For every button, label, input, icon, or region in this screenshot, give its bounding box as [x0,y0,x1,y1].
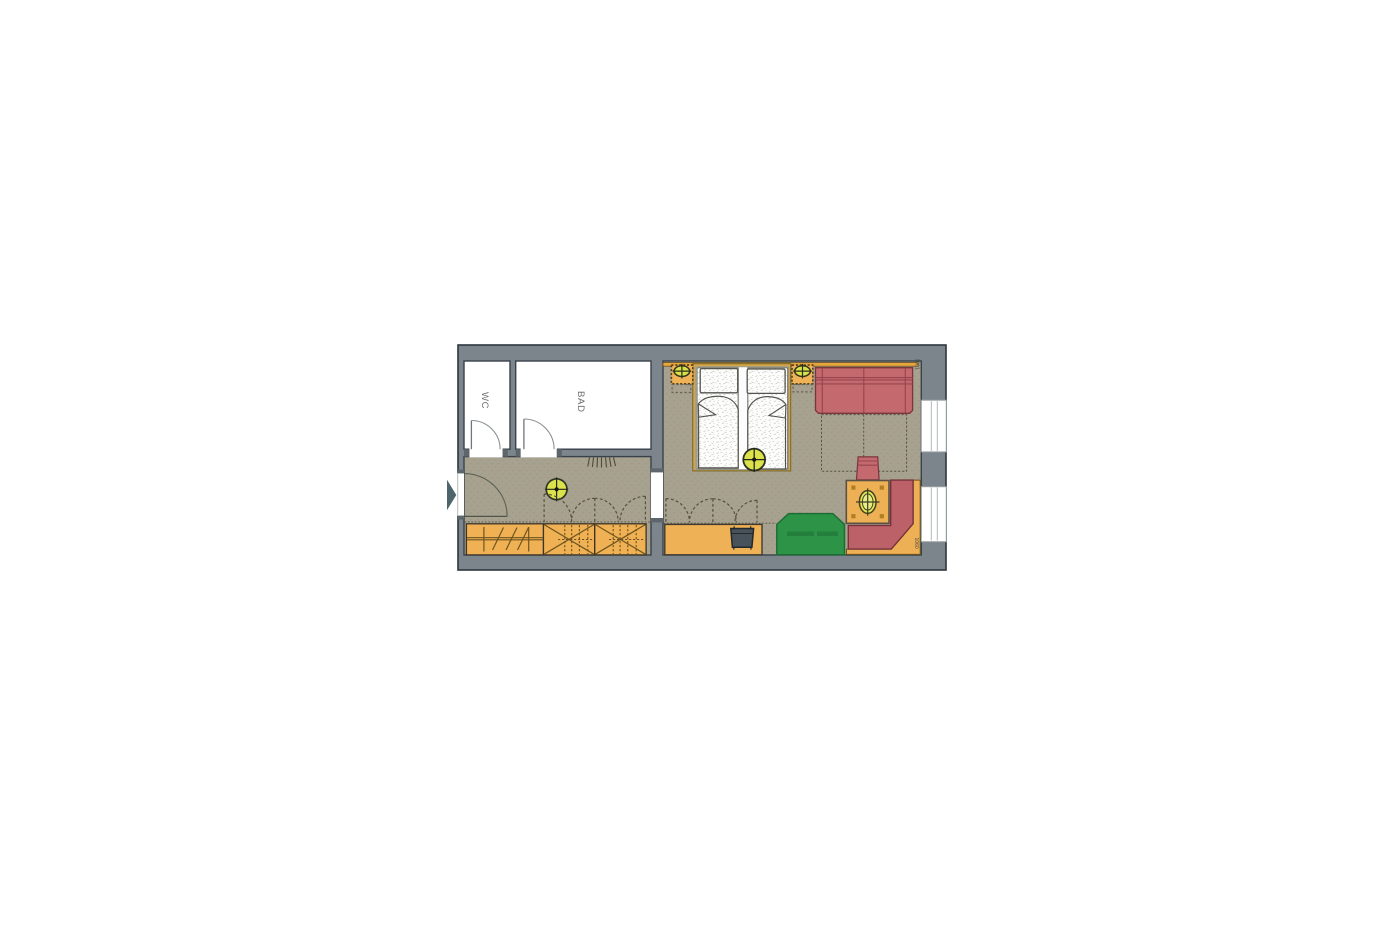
svg-text:BAD: BAD [575,391,586,413]
svg-text:1001: 1001 [914,359,920,370]
svg-text:1060: 1060 [913,538,919,549]
svg-text:WC: WC [479,392,490,409]
